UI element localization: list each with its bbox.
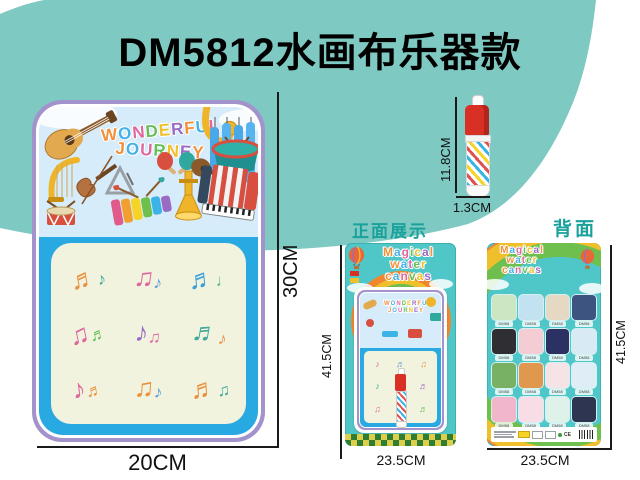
mini-music-doodle: ♫ — [420, 360, 427, 369]
mini-mat-illustration: WONDERFUL JOURNEY — [360, 293, 441, 348]
variant-thumb: DM58 — [519, 363, 543, 395]
water-pen — [464, 95, 490, 195]
variant-thumb: DM58 — [572, 329, 596, 361]
variant-thumb: DM58 — [492, 397, 516, 429]
front-width-label: 23.5CM — [350, 452, 452, 468]
pen-width-label: 1.3CM — [448, 200, 496, 215]
mat-height-label: 30CM — [280, 236, 303, 298]
front-height-label: 41.5CM — [320, 312, 334, 378]
package-back: Magical water canvas DM58DM58DM58DM58DM5… — [487, 243, 601, 446]
mini-banner-line1: WONDERFUL — [384, 301, 428, 308]
hot-air-balloon-icon — [580, 248, 595, 270]
mat-height-line — [277, 92, 279, 446]
mat-width-line — [37, 446, 279, 448]
front-brand-title: Magical water canvas — [365, 246, 452, 282]
variant-thumb: DM58 — [546, 295, 570, 327]
variant-thumb: DM58 — [519, 397, 543, 429]
mini-music-doodle: ♪ — [375, 360, 380, 369]
variant-thumb: DM58 — [519, 295, 543, 327]
mini-banner-line2: JOURNEY — [384, 308, 428, 315]
mat-width-label: 20CM — [37, 450, 278, 476]
mat-blue-frame: ♬♪♫♪♬♩♫♬♪♫♬♪♪♬♫♪♬♫ — [39, 237, 258, 435]
info-box — [545, 431, 556, 439]
variant-thumb: DM58 — [546, 329, 570, 361]
music-doodle: ♬♪ — [190, 317, 230, 350]
mini-pen — [395, 368, 406, 426]
page-title: DM5812水画布乐器款 — [0, 20, 640, 78]
variant-thumb: DM58 — [546, 397, 570, 429]
ce-mark: CE — [564, 432, 571, 438]
music-doodle: ♫♪ — [132, 263, 164, 294]
variant-thumb: DM58 — [572, 295, 596, 327]
mini-banner: WONDERFUL JOURNEY — [384, 301, 428, 315]
variant-thumb: DM58 — [492, 295, 516, 327]
music-doodle: ♬♩ — [186, 263, 233, 294]
info-box — [532, 431, 543, 439]
variant-thumb: DM58 — [492, 363, 516, 395]
variant-thumb: DM58 — [492, 329, 516, 361]
music-doodle: ♪♬ — [71, 373, 105, 404]
variant-thumb: DM58 — [546, 363, 570, 395]
music-doodle: ♫♬ — [66, 316, 108, 350]
music-doodle: ♬♫ — [189, 373, 231, 403]
cloud-decoration — [579, 283, 601, 294]
water-canvas-mat: WONDERFUL JOURNEY — [32, 100, 265, 442]
variant-thumb: DM58 — [572, 397, 596, 429]
doodle-grid: ♬♪♫♪♬♩♫♬♪♫♬♪♪♬♫♪♬♫ — [57, 251, 240, 416]
age-mark-blocks — [350, 271, 359, 285]
barcode — [579, 430, 594, 439]
blister-pack: WONDERFUL JOURNEY — [354, 287, 447, 433]
music-doodle: ♫♪ — [133, 374, 164, 403]
mini-music-doodle: ♫ — [374, 405, 381, 414]
package-info-strip: CE — [491, 427, 597, 442]
pen-width-line — [456, 196, 490, 198]
brand-line3: canvas — [491, 266, 553, 276]
front-section-label: 正面展示 — [352, 217, 448, 242]
variant-thumb: DM58 — [519, 329, 543, 361]
accordion-icon — [193, 159, 258, 224]
mat-inner: WONDERFUL JOURNEY — [36, 104, 261, 438]
variant-grid: DM58DM58DM58DM58DM58DM58DM58DM58DM58DM58… — [492, 295, 596, 429]
mini-music-doodle: ♪ — [375, 382, 380, 391]
back-width-line — [487, 448, 612, 450]
mini-music-doodle: ♬ — [419, 405, 428, 414]
pen-cap — [465, 105, 489, 135]
pen-body — [466, 141, 490, 187]
mini-music-doodle: ♬ — [419, 382, 428, 391]
variant-thumb: DM58 — [572, 363, 596, 395]
snare-drum-icon — [43, 199, 79, 229]
pen-height-line — [455, 97, 457, 193]
back-height-label: 41.5CM — [614, 298, 628, 364]
music-doodle: ♪♫ — [134, 319, 163, 349]
music-doodle: ♬♪ — [68, 262, 108, 295]
back-width-label: 23.5CM — [494, 452, 596, 468]
back-brand-title: Magical water canvas — [491, 246, 553, 276]
hot-air-balloon-icon — [348, 246, 365, 270]
info-text-lines — [494, 430, 516, 439]
package-front: Magical water canvas WONDERFUL JOURNEY — [345, 243, 456, 446]
back-section-label: 背面 — [543, 214, 607, 241]
brand-line3: canvas — [365, 270, 452, 282]
checker-strip — [345, 434, 456, 446]
mat-illustration: WONDERFUL JOURNEY — [39, 107, 258, 237]
pen-height-label: 11.8CM — [438, 116, 453, 182]
product-spec-sheet: DM5812水画布乐器款 WONDERFUL JOURNEY — [0, 0, 640, 480]
back-height-line — [610, 245, 612, 449]
doodle-panel: ♬♪♫♪♬♩♫♬♪♫♬♪♪♬♫♪♬♫ — [51, 243, 246, 424]
green-dot-mark — [558, 433, 562, 437]
front-height-line — [340, 245, 342, 459]
warning-chip — [518, 431, 530, 438]
